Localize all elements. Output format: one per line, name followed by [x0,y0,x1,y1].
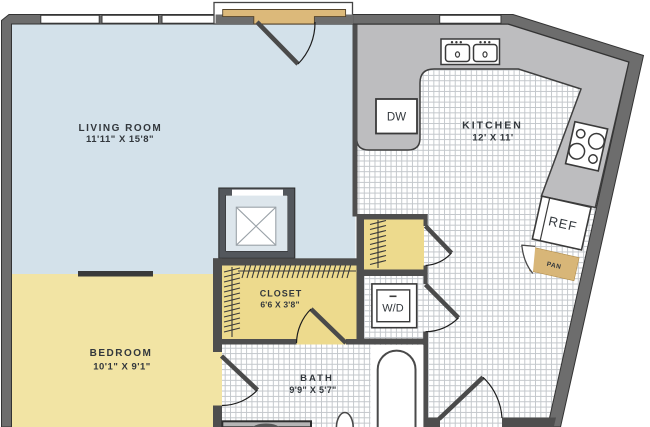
svg-text:CLOSET: CLOSET [260,289,303,299]
svg-text:DW: DW [387,112,406,124]
svg-text:12' X 11': 12' X 11' [472,132,513,143]
svg-text:11'11" X 15'8": 11'11" X 15'8" [86,134,154,145]
svg-text:BATH: BATH [300,373,334,384]
svg-text:10'1" X 9'1": 10'1" X 9'1" [93,362,151,373]
svg-text:W/D: W/D [382,303,403,315]
svg-text:6'6 X 3'8": 6'6 X 3'8" [260,300,299,310]
svg-text:LIVING ROOM: LIVING ROOM [79,123,163,134]
svg-text:9'9" X 5'7": 9'9" X 5'7" [289,385,336,395]
svg-text:KITCHEN: KITCHEN [462,120,523,132]
svg-text:BEDROOM: BEDROOM [90,348,153,359]
